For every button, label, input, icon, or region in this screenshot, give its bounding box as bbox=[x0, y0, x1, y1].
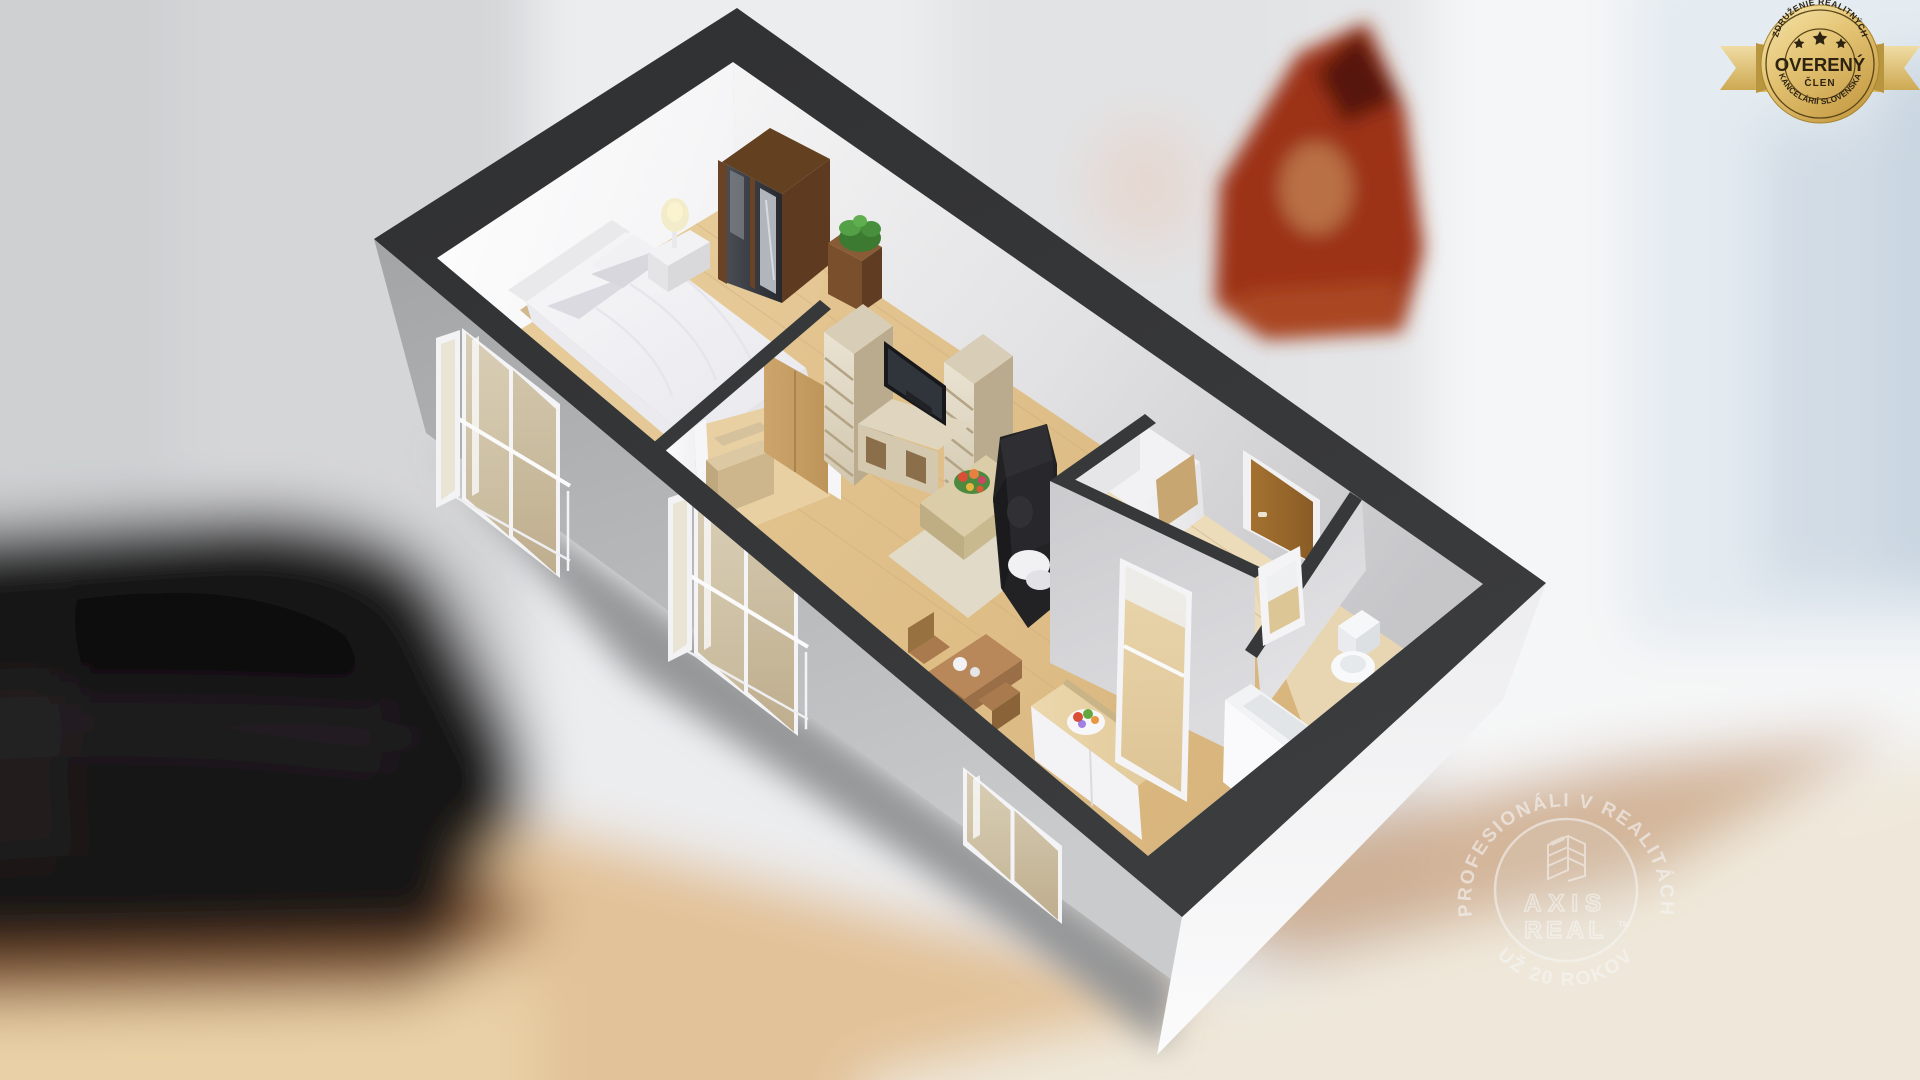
svg-text:TM: TM bbox=[1618, 920, 1630, 929]
svg-text:REAL: REAL bbox=[1524, 917, 1607, 944]
svg-text:AXIS: AXIS bbox=[1524, 890, 1608, 917]
svg-text:OVERENÝ: OVERENÝ bbox=[1775, 54, 1866, 75]
svg-text:ČLEN: ČLEN bbox=[1804, 76, 1835, 89]
